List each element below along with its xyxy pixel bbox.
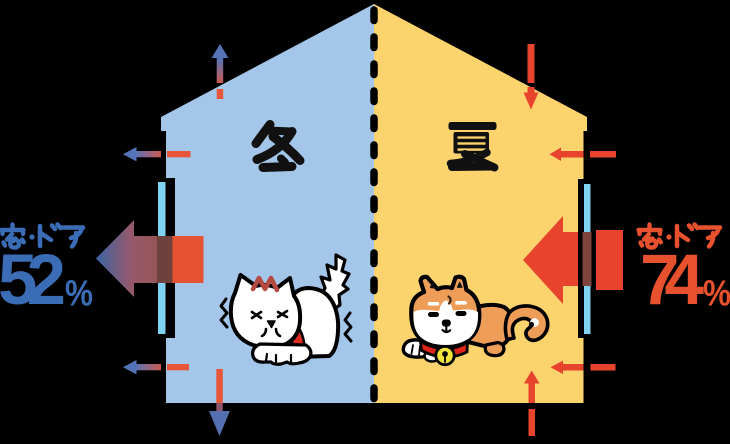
svg-text:%: %	[703, 273, 730, 314]
svg-text:%: %	[65, 273, 93, 314]
svg-text:74: 74	[640, 241, 705, 320]
svg-text:52: 52	[0, 241, 66, 320]
